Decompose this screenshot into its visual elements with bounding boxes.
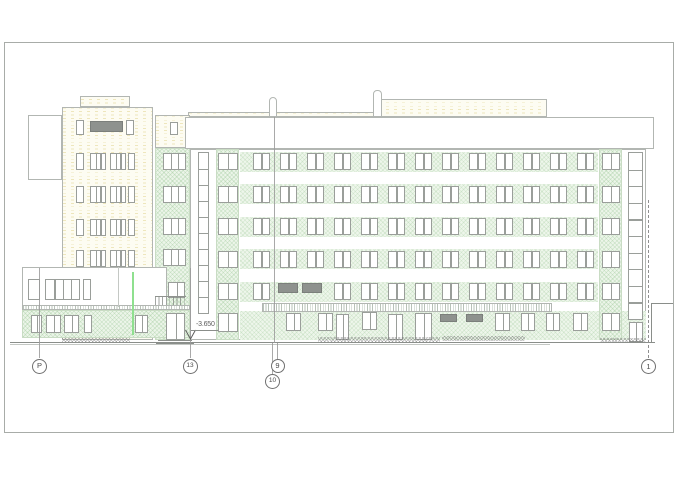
retaining-wall xyxy=(651,303,652,342)
grid-axis-line xyxy=(648,200,649,358)
facade-window xyxy=(415,153,432,170)
window-mullion xyxy=(96,251,97,266)
window-mullion xyxy=(294,314,295,330)
window-mullion xyxy=(96,187,97,202)
window-mullion xyxy=(342,284,343,299)
facade-window xyxy=(388,283,405,300)
facade-window xyxy=(469,283,486,300)
window xyxy=(76,219,84,236)
window-mullion xyxy=(72,316,73,332)
ribbon-window-dark xyxy=(90,121,123,132)
window xyxy=(362,312,377,330)
window-mullion xyxy=(100,187,101,202)
window xyxy=(90,250,106,267)
window-mullion xyxy=(228,187,229,202)
dark-panel xyxy=(302,283,322,293)
vent-pipe xyxy=(373,90,382,117)
window-mullion xyxy=(370,313,371,329)
window-mullion xyxy=(477,187,478,202)
elevation-drawing-canvas: P139101 -3.650 xyxy=(0,0,678,480)
window xyxy=(128,219,135,236)
level-annotation: -3.650 xyxy=(196,321,215,328)
facade-window xyxy=(415,251,432,268)
grid-axis-line xyxy=(190,268,191,358)
window-mullion xyxy=(178,250,179,265)
right-stair-strip xyxy=(599,149,622,340)
window-mullion xyxy=(450,187,451,202)
window-mullion xyxy=(63,280,64,299)
facade-window xyxy=(334,251,351,268)
facade-window xyxy=(523,153,540,170)
window-mullion xyxy=(176,314,177,339)
facade-window xyxy=(253,283,270,300)
glazing-divider xyxy=(629,236,642,237)
glazing-divider xyxy=(629,203,642,204)
glazing-divider xyxy=(629,253,642,254)
facade-window xyxy=(415,218,432,235)
facade-window xyxy=(307,186,324,203)
window-mullion xyxy=(315,219,316,234)
facade-window xyxy=(361,218,378,235)
facade-window xyxy=(550,186,567,203)
window-mullion xyxy=(71,280,72,299)
window-mullion xyxy=(423,219,424,234)
window-mullion xyxy=(450,284,451,299)
glazing-divider xyxy=(199,185,208,186)
tower-parapet-box xyxy=(80,96,130,107)
window xyxy=(163,218,186,235)
window xyxy=(163,186,186,203)
annex-divider xyxy=(118,267,119,307)
window-mullion xyxy=(369,154,370,169)
window-mullion xyxy=(531,252,532,267)
window-mullion xyxy=(423,252,424,267)
dark-panel xyxy=(278,283,298,293)
window-mullion xyxy=(369,187,370,202)
facade-window xyxy=(496,186,513,203)
window-mullion xyxy=(228,314,229,331)
facade-window xyxy=(388,218,405,235)
window-mullion xyxy=(611,284,612,299)
glazing-divider xyxy=(629,269,642,270)
window-mullion xyxy=(142,316,143,332)
window-mullion xyxy=(54,316,55,332)
window-mullion xyxy=(424,314,425,339)
window-mullion xyxy=(396,315,397,339)
window-mullion xyxy=(369,219,370,234)
window xyxy=(218,186,238,203)
window xyxy=(110,186,126,203)
window-mullion xyxy=(120,187,121,202)
window-mullion xyxy=(553,314,554,330)
window-mullion xyxy=(228,154,229,169)
facade-window xyxy=(469,218,486,235)
window xyxy=(546,313,560,331)
window-mullion xyxy=(396,252,397,267)
dark-transom xyxy=(440,314,457,322)
window-mullion xyxy=(581,314,582,330)
glazing-divider xyxy=(199,169,208,170)
window xyxy=(163,153,186,170)
window-mullion xyxy=(261,219,262,234)
grid-axis-line xyxy=(277,343,278,359)
glazing-divider xyxy=(199,281,208,282)
grid-bubble-13: 13 xyxy=(183,359,198,374)
glazing-divider xyxy=(629,286,642,287)
window xyxy=(602,153,620,170)
window xyxy=(286,313,301,331)
facade-window xyxy=(253,186,270,203)
window-mullion xyxy=(396,187,397,202)
window-mullion xyxy=(611,252,612,267)
window-mullion xyxy=(288,154,289,169)
window-mullion xyxy=(315,187,316,202)
window-mullion xyxy=(120,251,121,266)
stair-glazing-left xyxy=(198,152,209,314)
window xyxy=(163,249,186,266)
facade-window xyxy=(442,283,459,300)
window xyxy=(170,122,178,135)
dark-transom xyxy=(466,314,483,322)
facade-window xyxy=(280,251,297,268)
window-mullion xyxy=(288,219,289,234)
window-mullion xyxy=(611,154,612,169)
window-mullion xyxy=(558,219,559,234)
window xyxy=(31,315,42,333)
window-mullion xyxy=(261,284,262,299)
window-mullion xyxy=(585,219,586,234)
window-mullion xyxy=(116,220,117,235)
window-mullion xyxy=(342,154,343,169)
window-mullion xyxy=(423,154,424,169)
glazing-divider xyxy=(629,186,642,187)
window xyxy=(110,250,126,267)
window xyxy=(602,186,620,203)
facade-window xyxy=(334,153,351,170)
facade-window xyxy=(253,218,270,235)
facade-window xyxy=(496,218,513,235)
window-mullion xyxy=(178,187,179,202)
facade-window xyxy=(496,153,513,170)
facade-window xyxy=(388,153,405,170)
window-mullion xyxy=(504,284,505,299)
window xyxy=(83,279,91,300)
facade-window xyxy=(442,186,459,203)
window xyxy=(90,219,106,236)
facade-window xyxy=(496,251,513,268)
grid-axis-line xyxy=(274,117,275,343)
left-stair-strip xyxy=(216,149,239,340)
window xyxy=(218,153,238,170)
window-mullion xyxy=(531,284,532,299)
window xyxy=(135,315,148,333)
glazing-divider xyxy=(629,219,642,220)
window-mullion xyxy=(261,252,262,267)
window-mullion xyxy=(342,252,343,267)
window-mullion xyxy=(288,252,289,267)
facade-window xyxy=(361,153,378,170)
stair-glazing-right xyxy=(628,152,643,320)
window xyxy=(602,218,620,235)
window-mullion xyxy=(396,154,397,169)
window xyxy=(76,120,84,135)
window xyxy=(128,153,135,170)
facade-window xyxy=(388,186,405,203)
window-mullion xyxy=(315,154,316,169)
window-mullion xyxy=(120,154,121,169)
window-mullion xyxy=(504,154,505,169)
window-mullion xyxy=(450,252,451,267)
facade-window xyxy=(253,251,270,268)
glazing-divider xyxy=(199,233,208,234)
facade-window xyxy=(280,153,297,170)
vent-pipe xyxy=(269,97,277,117)
window-mullion xyxy=(531,154,532,169)
window xyxy=(495,313,510,331)
stair-tower-rear xyxy=(28,115,62,180)
facade-window xyxy=(577,153,594,170)
window xyxy=(218,218,238,235)
window-mullion xyxy=(116,187,117,202)
window-mullion xyxy=(611,219,612,234)
facade-window xyxy=(550,251,567,268)
building-elevation: P139101 xyxy=(0,0,678,480)
window-mullion xyxy=(477,154,478,169)
window-mullion xyxy=(450,154,451,169)
window xyxy=(126,120,134,135)
window-mullion xyxy=(558,284,559,299)
facade-window xyxy=(334,218,351,235)
window xyxy=(46,315,61,333)
retaining-wall-top xyxy=(651,303,673,304)
window-mullion xyxy=(261,187,262,202)
window xyxy=(76,186,84,203)
window-mullion xyxy=(558,252,559,267)
facade-window xyxy=(361,251,378,268)
window-mullion xyxy=(100,154,101,169)
door xyxy=(166,313,185,340)
window xyxy=(76,153,84,170)
facade-window xyxy=(577,283,594,300)
window xyxy=(218,283,238,300)
window-mullion xyxy=(228,219,229,234)
facade-window xyxy=(442,218,459,235)
window-mullion xyxy=(611,314,612,330)
window-mullion xyxy=(558,154,559,169)
facade-window xyxy=(469,251,486,268)
grid-axis-line xyxy=(39,268,40,358)
facade-window xyxy=(550,153,567,170)
glazing-divider xyxy=(629,170,642,171)
facade-window xyxy=(523,218,540,235)
window-mullion xyxy=(120,220,121,235)
facade-window xyxy=(361,186,378,203)
facade-window xyxy=(469,186,486,203)
window-mullion xyxy=(396,219,397,234)
window-mullion xyxy=(261,154,262,169)
facade-window xyxy=(415,283,432,300)
window xyxy=(218,313,238,332)
balcony-railing xyxy=(155,296,186,305)
downpipe-green xyxy=(132,272,134,335)
window-mullion xyxy=(171,154,172,169)
facade-window xyxy=(415,186,432,203)
window-mullion xyxy=(450,219,451,234)
window-mullion xyxy=(611,187,612,202)
window xyxy=(110,153,126,170)
window-mullion xyxy=(369,284,370,299)
canopy xyxy=(262,303,552,312)
window-mullion xyxy=(423,284,424,299)
glazing-divider xyxy=(199,297,208,298)
grid-bubble-1: 1 xyxy=(641,359,656,374)
glazing-divider xyxy=(629,302,642,303)
parapet-band xyxy=(185,117,654,149)
window-mullion xyxy=(96,220,97,235)
window-mullion xyxy=(477,284,478,299)
window-mullion xyxy=(558,187,559,202)
window-mullion xyxy=(531,187,532,202)
window-mullion xyxy=(228,284,229,299)
window-mullion xyxy=(369,252,370,267)
window xyxy=(28,279,40,300)
glazing-divider xyxy=(199,265,208,266)
window-mullion xyxy=(585,154,586,169)
ground-line-2 xyxy=(10,344,550,345)
window-mullion xyxy=(171,187,172,202)
window xyxy=(128,250,135,267)
window xyxy=(128,186,135,203)
facade-window xyxy=(334,186,351,203)
door xyxy=(415,313,432,340)
facade-window xyxy=(307,153,324,170)
window xyxy=(84,315,92,333)
window xyxy=(602,283,620,300)
facade-window xyxy=(496,283,513,300)
facade-window xyxy=(388,251,405,268)
window-mullion xyxy=(288,187,289,202)
window-mullion xyxy=(343,315,344,339)
roof-structure-high xyxy=(377,99,547,117)
window-mullion xyxy=(342,219,343,234)
window-mullion xyxy=(178,219,179,234)
annex-upper xyxy=(22,267,167,307)
window-mullion xyxy=(585,187,586,202)
window-mullion xyxy=(504,219,505,234)
window-mullion xyxy=(177,283,178,297)
facade-window xyxy=(523,186,540,203)
grid-bubble-9: 9 xyxy=(271,359,285,373)
entry-step xyxy=(156,343,194,344)
window-mullion xyxy=(504,252,505,267)
window-mullion xyxy=(477,219,478,234)
window xyxy=(218,251,238,268)
window-mullion xyxy=(96,154,97,169)
window-mullion xyxy=(585,252,586,267)
facade-window xyxy=(307,218,324,235)
glazing-divider xyxy=(199,217,208,218)
window-mullion xyxy=(531,219,532,234)
facade-window xyxy=(280,186,297,203)
facade-window xyxy=(577,251,594,268)
ground-line xyxy=(10,342,655,343)
window-mullion xyxy=(37,316,38,332)
window-mullion xyxy=(326,314,327,330)
facade-window xyxy=(577,186,594,203)
window xyxy=(318,313,333,331)
window xyxy=(110,219,126,236)
window xyxy=(602,313,620,331)
facade-window xyxy=(361,283,378,300)
facade-window xyxy=(523,251,540,268)
window-mullion xyxy=(100,220,101,235)
window-mullion xyxy=(171,250,172,265)
window xyxy=(64,315,79,333)
window-mullion xyxy=(504,187,505,202)
facade-window xyxy=(334,283,351,300)
window-mullion xyxy=(228,252,229,267)
window xyxy=(573,313,588,331)
window-mullion xyxy=(116,251,117,266)
facade-window xyxy=(550,218,567,235)
window xyxy=(45,279,80,300)
window-mullion xyxy=(396,284,397,299)
level-mark-line xyxy=(191,330,218,331)
window-mullion xyxy=(585,284,586,299)
window-mullion xyxy=(315,252,316,267)
window xyxy=(90,186,106,203)
ramp-hatch xyxy=(442,336,525,341)
facade-window xyxy=(307,251,324,268)
facade-window xyxy=(253,153,270,170)
window-mullion xyxy=(342,187,343,202)
glazing-divider xyxy=(199,201,208,202)
window xyxy=(76,250,84,267)
window xyxy=(90,153,106,170)
glazing-divider xyxy=(199,249,208,250)
facade-window xyxy=(523,283,540,300)
facade-window xyxy=(577,218,594,235)
grid-bubble-P: P xyxy=(32,359,47,374)
window-mullion xyxy=(54,280,55,299)
facade-window xyxy=(550,283,567,300)
window-mullion xyxy=(423,187,424,202)
facade-window xyxy=(469,153,486,170)
window-mullion xyxy=(528,314,529,330)
window-mullion xyxy=(503,314,504,330)
window-mullion xyxy=(477,252,478,267)
grid-bubble-10: 10 xyxy=(265,374,280,389)
window xyxy=(521,313,535,331)
window-mullion xyxy=(171,219,172,234)
window-mullion xyxy=(116,154,117,169)
facade-window xyxy=(442,251,459,268)
window xyxy=(602,251,620,268)
window-mullion xyxy=(100,251,101,266)
facade-window xyxy=(442,153,459,170)
window-mullion xyxy=(178,154,179,169)
facade-window xyxy=(280,218,297,235)
level-mark-arrow xyxy=(184,329,198,341)
